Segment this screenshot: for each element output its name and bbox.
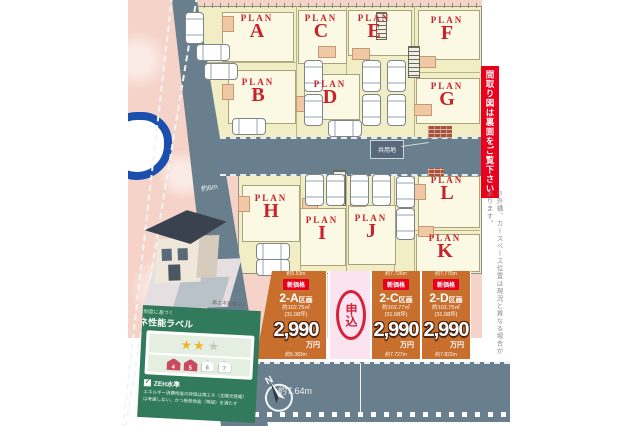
brick-paving [428,126,452,138]
stars-filled: ★★ [180,338,206,352]
shared-area-text: 共用地 [378,145,396,154]
lot-name: 2-A区画 [279,291,312,305]
lot-name: 2-D区画 [429,291,462,305]
car-icon [387,60,406,92]
price-lot-2c: 約7.726m 新価格 2-C区画 約102.77㎡ (31.08坪) 2,99… [370,271,421,359]
plan-letter-e: E [346,23,402,40]
energy-description: エネルギー消費性能の評価は再エネ（太陽光発電） は考慮しない、かつ断熱性能（等級… [143,389,252,408]
lot-area: 約102.77㎡ [382,305,410,312]
price-unit: 万円 [306,340,320,350]
plan-letter-l: L [419,185,475,202]
plan-label-b: PLANB [230,78,286,104]
price-lot-2d: 約7.775m 新価格 2-D区画 約102.75㎡ (31.08坪) 2,99… [420,271,471,359]
house-grade-icon: 5 [183,359,198,372]
lot-tsubo: (31.08坪) [385,312,408,319]
plan-label-d: PLAND [302,80,358,106]
car-icon [372,174,391,206]
dim-top: 約7.726m [385,271,407,278]
zeh-checkbox: ✓ [144,379,151,386]
plan-label-f: PLANF [419,16,475,42]
car-icon [328,120,362,137]
star-empty: ★ [207,339,219,353]
lot-name: 2-C区画 [379,291,412,305]
house-window [162,249,172,261]
lot-2b-applied: 申込 [328,271,372,359]
plan-letter-i: I [294,225,350,242]
energy-label-card: ★★ ★ 4 5 6 7 [144,330,254,380]
lot-boundary-line [414,72,480,73]
applied-text: 申込 [345,303,357,327]
site-plan-flyer: PLANA PLANB PLANC PLAND PLANE PLANF PLAN… [0,0,640,426]
dim-bottom: 約7.822m [435,352,457,359]
car-icon [350,174,369,206]
plan-label-a: PLANA [229,14,285,40]
car-icon [362,94,381,126]
compass: N [257,372,299,416]
plan-label-e: PLANE [346,14,402,40]
dim-top: 約7.775m [435,271,457,278]
price-unit: 万円 [450,340,464,350]
house-grade-icon: 7 [217,360,232,373]
porch [318,46,336,58]
house-door [168,264,181,280]
lot-price: 2,990 [373,320,418,340]
plan-letter-h: H [243,203,299,220]
lot-tsubo: (31.08坪) [435,312,458,319]
new-price-badge: 新価格 [283,279,309,290]
plan-label-c: PLANC [293,14,349,40]
energy-label-panel: 表示制度に基づく 省エネ性能ラベル ★★ ★ 4 5 6 7 ✓ ZEH水準 エ… [137,305,261,423]
plan-letter-a: A [229,23,285,40]
car-icon [305,174,324,206]
porch [418,56,436,68]
road-shared-driveway [220,137,498,176]
price-unit: 万円 [400,340,414,350]
car-icon [256,243,290,260]
house-grade-icon: 4 [166,358,181,371]
new-price-badge: 新価格 [383,279,409,290]
dim-top: 約5.53m [287,271,306,278]
dim-bottom: 約5.383m [285,352,307,359]
plan-letter-k: K [417,243,473,260]
lot-tsubo: (31.08坪) [285,312,308,319]
plan-letter-b: B [230,87,286,104]
applied-stamp: 申込 [336,290,366,340]
car-icon [387,94,406,126]
house-grade-icon: 6 [200,360,215,373]
new-price-badge: 新価格 [433,279,459,290]
energy-stars-row: ★★ ★ [149,333,252,357]
boundary-ticks-north [196,3,480,8]
lot-price: 2,990 [273,320,318,340]
lot-price: 2,990 [423,320,468,340]
shared-area-label-box: 共用地 [370,140,404,159]
porch [352,48,370,60]
plan-label-i: PLANI [294,216,350,242]
lot-area: 約102.75㎡ [432,305,460,312]
lot-area: 約102.75㎡ [282,305,310,312]
zeh-label: ZEH水準 [154,378,180,389]
see-reverse-banner: 間取り図は裏面をご覧下さい [481,66,499,198]
car-icon [326,174,345,206]
plan-letter-g: G [419,91,475,108]
car-icon [185,12,204,44]
plan-label-g: PLANG [419,82,475,108]
plan-letter-d: D [302,89,358,106]
plan-label-h: PLANH [243,194,299,220]
plan-letter-f: F [419,25,475,42]
stairs-icon [408,46,420,78]
caution-note: ※外構、カースペース位置は現況と異なる場合があります。 [483,190,503,358]
house-wall-side [196,235,219,278]
house-window [178,248,188,260]
plan-label-k: PLANK [417,234,473,260]
car-icon [196,44,230,61]
insulation-houses-row: 4 5 6 7 [148,354,251,376]
dimension-line [360,363,361,415]
plan-label-l: PLANL [419,176,475,202]
car-icon [232,118,266,135]
dim-bottom: 約7.727m [385,352,407,359]
car-icon [362,60,381,92]
plan-letter-j: J [343,223,399,240]
plan-label-j: PLANJ [343,214,399,240]
plan-letter-c: C [293,23,349,40]
car-icon [396,176,415,208]
